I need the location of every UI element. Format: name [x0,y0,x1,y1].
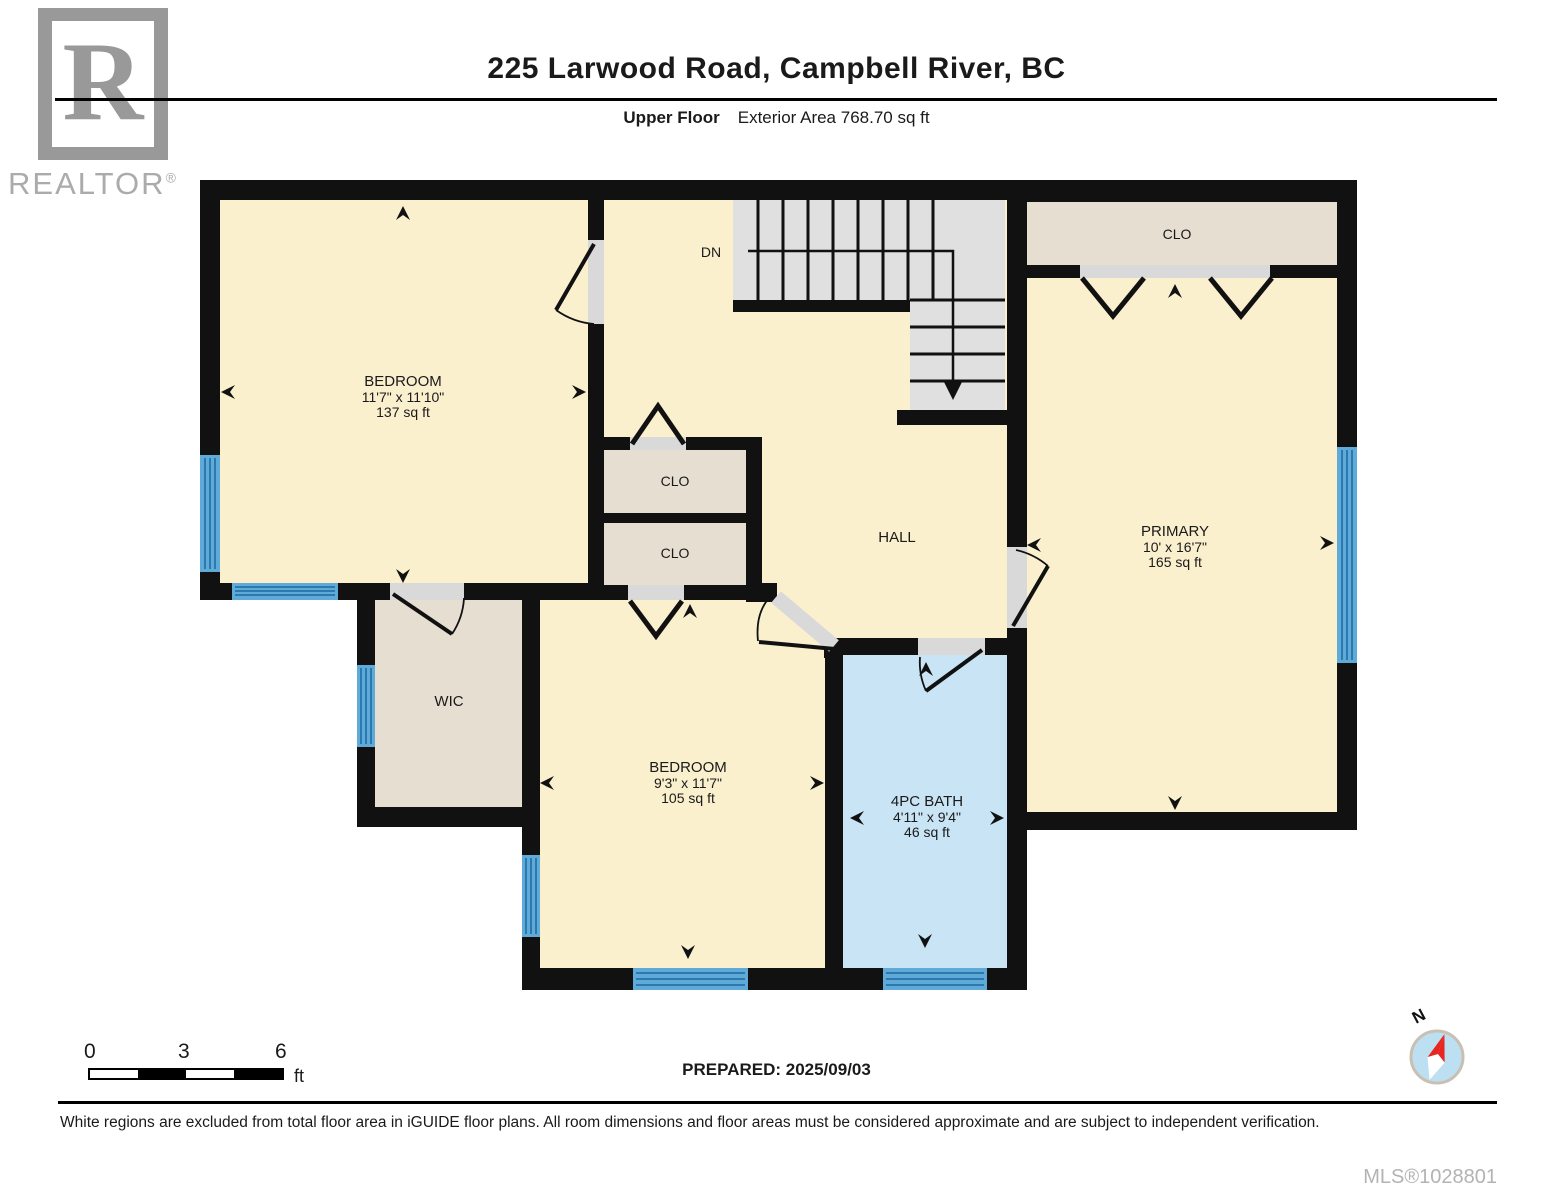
window-bedroom2-bottom [633,968,748,990]
label-primary-name: PRIMARY [1141,523,1209,540]
window-bedroom1-left [200,455,220,572]
label-bedroom2-area: 105 sq ft [661,790,715,806]
window-bath-bottom [883,968,987,990]
label-bedroom1-area: 137 sq ft [376,404,430,420]
label-bedroom1-name: BEDROOM [364,373,442,390]
label-bath-name: 4PC BATH [891,793,963,810]
label-bedroom2-dims: 9'3" x 11'7" [654,775,722,791]
wall-under-stairs-lower [897,410,1007,425]
label-primary-dims: 10' x 16'7" [1143,539,1207,555]
prepared-date-label: PREPARED: 2025/09/03 [0,1060,1553,1080]
window-primary-right [1337,447,1357,663]
label-hall: HALL [878,529,916,546]
label-bath-area: 46 sq ft [904,824,950,840]
compass-icon: N [1392,1002,1482,1097]
label-closet1: CLO [661,473,690,489]
label-bath-dims: 4'11" x 9'4" [893,809,961,825]
label-closet2: CLO [661,545,690,561]
wall-hall-corner [746,583,777,602]
window-bedroom2-left [522,855,540,937]
label-primary-area: 165 sq ft [1148,554,1202,570]
label-bedroom2-name: BEDROOM [649,759,727,776]
label-stairs-dn: DN [701,244,721,260]
window-bedroom1-bottom [232,583,338,600]
floorplan-svg: BEDROOM 11'7" x 11'10" 137 sq ft DN HALL… [0,0,1553,1200]
footer-divider [58,1101,1497,1104]
label-wic: WIC [434,693,463,710]
window-wic-left [357,665,375,747]
label-bedroom1-dims: 11'7" x 11'10" [362,389,445,405]
compass-north-label: N [1409,1005,1429,1028]
label-primary-closet: CLO [1163,226,1192,242]
disclaimer-text: White regions are excluded from total fl… [60,1114,1360,1132]
floorplan-page: R REALTOR® 225 Larwood Road, Campbell Ri… [0,0,1553,1200]
mls-number: MLS®1028801 [1363,1166,1497,1189]
